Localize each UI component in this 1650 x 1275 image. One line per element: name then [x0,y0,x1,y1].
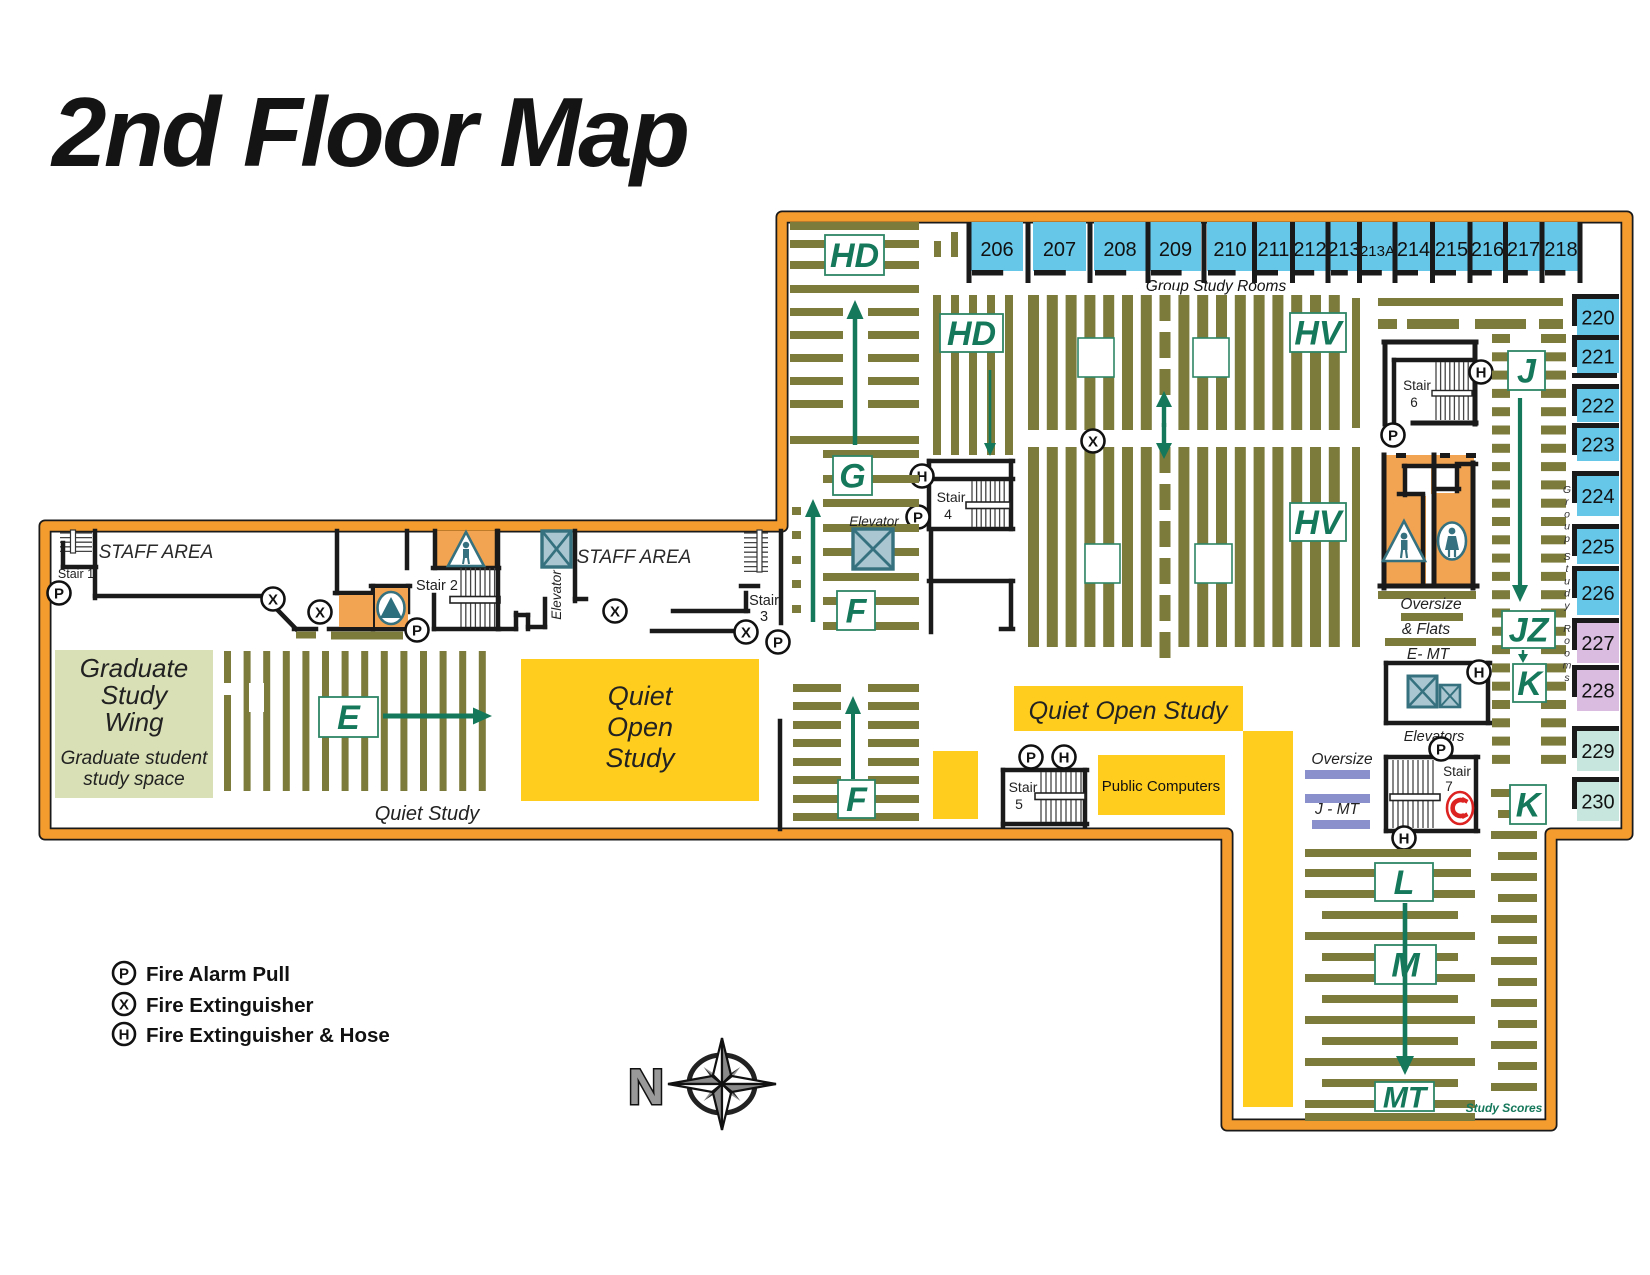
svg-text:Wing: Wing [104,707,164,737]
svg-text:X: X [315,605,325,622]
svg-text:H: H [119,1027,130,1044]
svg-text:Stair 1: Stair 1 [58,567,94,581]
svg-text:Elevator: Elevator [849,514,899,529]
svg-text:215: 215 [1435,239,1468,261]
svg-text:F: F [846,593,868,631]
svg-text:HV: HV [1294,315,1345,353]
svg-text:E: E [337,699,361,737]
svg-text:P: P [773,635,783,652]
svg-text:209: 209 [1159,239,1192,261]
svg-text:E- MT: E- MT [1407,646,1451,663]
svg-text:4: 4 [944,506,952,522]
svg-text:Study Scores: Study Scores [1466,1101,1543,1115]
svg-text:P: P [412,623,422,640]
svg-text:X: X [119,997,129,1014]
svg-text:JZ: JZ [1509,612,1550,650]
svg-text:Group: Group [1563,484,1571,545]
svg-text:G: G [839,458,865,496]
svg-text:211: 211 [1258,239,1290,261]
svg-text:212: 212 [1293,239,1326,261]
svg-text:X: X [610,604,620,621]
svg-text:STAFF AREA: STAFF AREA [99,542,214,563]
svg-text:Oversize: Oversize [1400,596,1462,613]
svg-text:220: 220 [1581,308,1614,330]
svg-text:213A: 213A [1360,243,1395,260]
svg-text:P: P [1436,742,1446,759]
svg-text:206: 206 [980,239,1013,261]
svg-text:X: X [268,592,278,609]
svg-text:J: J [1517,353,1537,391]
svg-text:H: H [1059,750,1070,767]
svg-text:Quiet Study: Quiet Study [375,803,481,825]
svg-text:H: H [1399,831,1410,848]
svg-text:P: P [913,510,923,527]
svg-text:P: P [54,586,64,603]
svg-text:207: 207 [1043,239,1076,261]
svg-text:Stair: Stair [749,593,779,609]
svg-text:214: 214 [1397,239,1430,261]
svg-text:225: 225 [1581,537,1614,559]
svg-text:223: 223 [1581,435,1614,457]
svg-text:Fire Extinguisher: Fire Extinguisher [146,994,313,1017]
svg-text:210: 210 [1213,239,1246,261]
svg-text:Graduate: Graduate [80,653,188,683]
svg-text:226: 226 [1581,583,1614,605]
svg-text:Fire Extinguisher & Hose: Fire Extinguisher & Hose [146,1024,390,1047]
svg-text:230: 230 [1581,792,1614,814]
svg-text:Quiet: Quiet [608,681,674,711]
svg-text:X: X [1088,434,1098,451]
svg-text:228: 228 [1581,681,1614,703]
svg-text:study space: study space [83,769,184,790]
svg-text:P: P [119,966,129,983]
svg-text:Oversize: Oversize [1311,751,1373,768]
svg-text:MT: MT [1383,1081,1429,1114]
svg-text:L: L [1394,864,1415,902]
svg-text:229: 229 [1581,741,1614,763]
svg-text:Study: Study [605,743,676,773]
svg-text:X: X [741,625,751,642]
svg-text:7: 7 [1445,779,1453,794]
svg-text:224: 224 [1581,486,1614,508]
svg-text:J - MT: J - MT [1314,801,1360,818]
svg-text:216: 216 [1471,239,1504,261]
svg-text:STAFF AREA: STAFF AREA [577,547,692,568]
svg-text:Open: Open [607,712,673,742]
svg-text:5: 5 [1015,796,1023,812]
svg-text:217: 217 [1507,239,1540,261]
svg-text:Graduate student: Graduate student [61,748,209,769]
svg-text:Quiet Open Study: Quiet Open Study [1029,697,1229,725]
svg-text:& Flats: & Flats [1402,621,1450,638]
svg-text:H: H [1476,365,1487,382]
svg-text:Stair: Stair [1443,764,1471,779]
svg-text:6: 6 [1410,395,1418,410]
svg-text:F: F [846,781,868,819]
svg-text:K: K [1517,665,1544,703]
svg-text:P: P [1388,428,1398,445]
svg-text:Elevator: Elevator [549,570,564,620]
svg-text:HD: HD [830,237,879,275]
svg-text:218: 218 [1544,239,1577,261]
svg-text:N: N [628,1059,664,1115]
svg-text:K: K [1516,787,1543,825]
svg-text:Stair 2: Stair 2 [416,578,458,594]
svg-text:221: 221 [1581,347,1614,369]
svg-text:208: 208 [1103,239,1136,261]
svg-text:HD: HD [947,315,996,353]
svg-text:HV: HV [1294,504,1345,542]
svg-text:2nd Floor Map: 2nd Floor Map [50,77,690,187]
svg-text:Public Computers: Public Computers [1102,778,1220,795]
svg-text:Stair: Stair [937,489,966,505]
svg-text:Stair: Stair [1009,779,1038,795]
svg-text:222: 222 [1581,396,1614,418]
svg-text:3: 3 [760,609,768,625]
svg-text:P: P [1026,750,1036,767]
svg-text:Stair: Stair [1403,378,1431,393]
svg-text:Study: Study [101,680,169,710]
svg-text:H: H [1474,665,1485,682]
svg-text:227: 227 [1581,633,1614,655]
svg-text:Fire Alarm Pull: Fire Alarm Pull [146,963,290,986]
svg-text:213: 213 [1327,239,1360,261]
